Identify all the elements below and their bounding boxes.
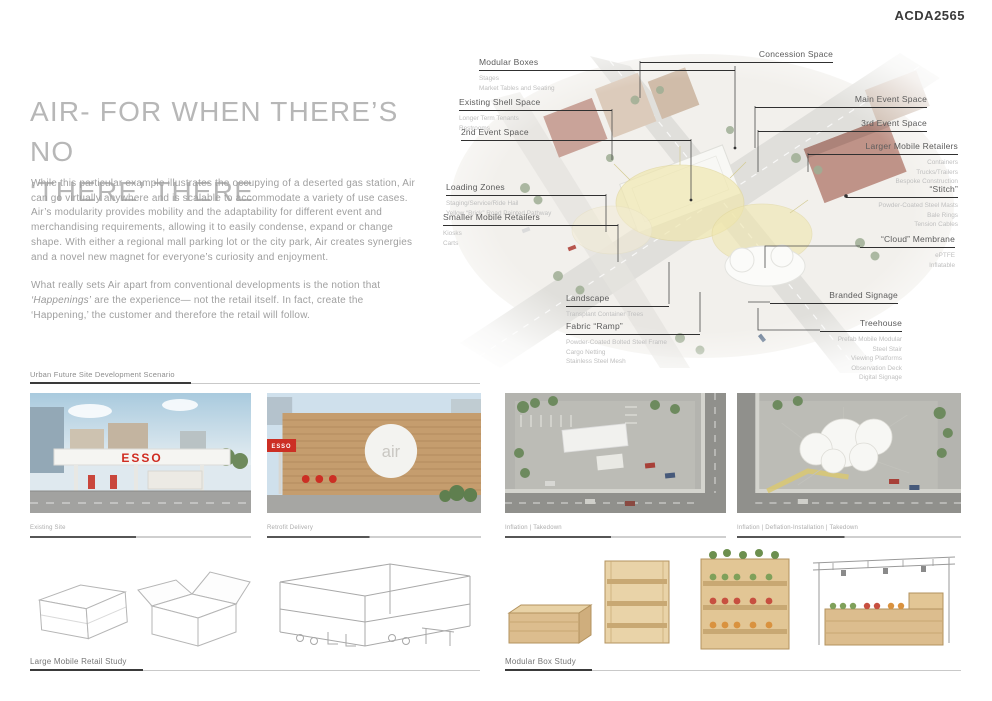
wireframe-box-closed	[39, 582, 129, 642]
paragraph2-prefix: What really sets Air apart from conventi…	[31, 280, 380, 291]
annotation-larger-mobile-retailers: Larger Mobile Retailers Containers Truck…	[808, 141, 958, 187]
annotation-treehouse: Treehouse Prefab Mobile Modular Steel St…	[820, 318, 902, 383]
large-mobile-retail-study-label: Large Mobile Retail Study	[30, 655, 480, 671]
annotation-landscape: Landscape Transplant Container Trees	[566, 293, 669, 320]
modular-box-sketches	[505, 545, 961, 650]
photo-retrofit-delivery: air ESSO	[267, 393, 481, 513]
caption-retrofit-delivery: Retrofit Delivery	[267, 516, 481, 538]
presentation-board: ACDA2565 AIR- FOR WHEN THERE’S NO ‘THERE…	[0, 0, 992, 701]
annotation-2nd-event-space: 2nd Event Space	[461, 127, 691, 141]
esso-awning-text: ESSO	[272, 444, 292, 450]
annotation-branded-signage: Branded Signage	[770, 290, 898, 304]
crate-shelving-produce	[701, 549, 789, 649]
deployed-retail-sketch	[280, 564, 470, 646]
large-mobile-retail-sketches	[30, 550, 480, 650]
annotation-stitch: “Stitch” Powder-Coated Steel Masts Bale …	[846, 184, 958, 230]
modular-box-study-label: Modular Box Study	[505, 655, 961, 671]
wireframe-box-open	[138, 572, 250, 646]
photo-aerial-cloud	[737, 393, 961, 513]
intro-paragraph-1: While this particular example illustrate…	[31, 177, 423, 265]
page-title-line1: AIR- FOR WHEN THERE’S NO	[30, 92, 450, 172]
annotation-smaller-mobile-retailers: Smaller Mobile Retailers Kiosks Carts	[443, 212, 618, 248]
crate-low	[509, 605, 591, 643]
caption-existing-site: Existing Site	[30, 516, 251, 538]
annotation-main-event-space: Main Event Space	[755, 94, 927, 108]
paragraph2-italic: ‘Happenings’	[31, 295, 91, 306]
market-stall-sketch	[813, 557, 955, 645]
caption-inflation-takedown: Inflation | Takedown	[505, 516, 726, 538]
caption-inflation-deflation: Inflation | Deflation-Installation | Tak…	[737, 516, 961, 538]
photo-existing-site: ESSO	[30, 393, 251, 513]
intro-paragraph-2: What really sets Air apart from conventi…	[31, 279, 423, 323]
annotation-concession-space: Concession Space	[640, 49, 833, 63]
annotation-fabric-ramp: Fabric “Ramp” Powder-Coated Bolted Steel…	[566, 321, 700, 367]
photo-aerial-takedown	[505, 393, 726, 513]
annotation-cloud-membrane: “Cloud” Membrane ePTFE Inflatable	[860, 234, 955, 270]
crate-shelving-empty	[605, 561, 669, 643]
annotation-3rd-event-space: 3rd Event Space	[758, 118, 927, 132]
intro-body: While this particular example illustrate…	[31, 177, 423, 337]
scenario-section-label: Urban Future Site Development Scenario	[30, 368, 480, 384]
air-logo-text: air	[382, 442, 401, 461]
esso-sign: ESSO	[121, 451, 162, 465]
project-code: ACDA2565	[895, 8, 965, 23]
